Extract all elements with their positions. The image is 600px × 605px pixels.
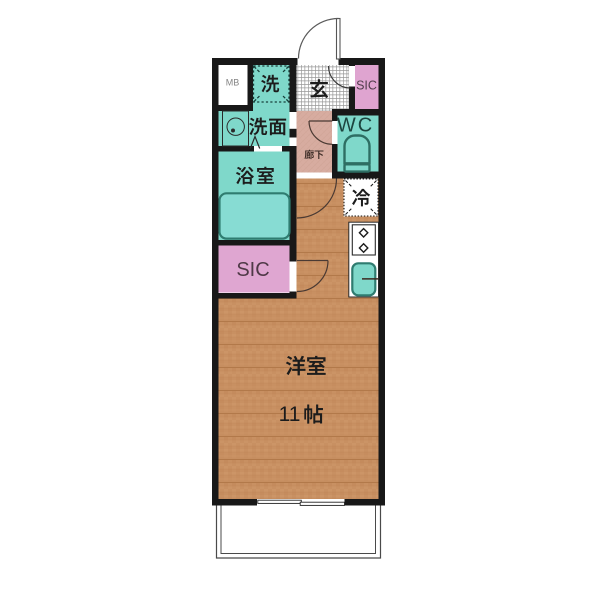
svg-text:MB: MB <box>226 78 240 88</box>
svg-text:WC: WC <box>337 115 374 137</box>
svg-text:SIC: SIC <box>356 79 377 93</box>
svg-text:11: 11 <box>279 403 301 426</box>
svg-text:SIC: SIC <box>236 259 269 281</box>
